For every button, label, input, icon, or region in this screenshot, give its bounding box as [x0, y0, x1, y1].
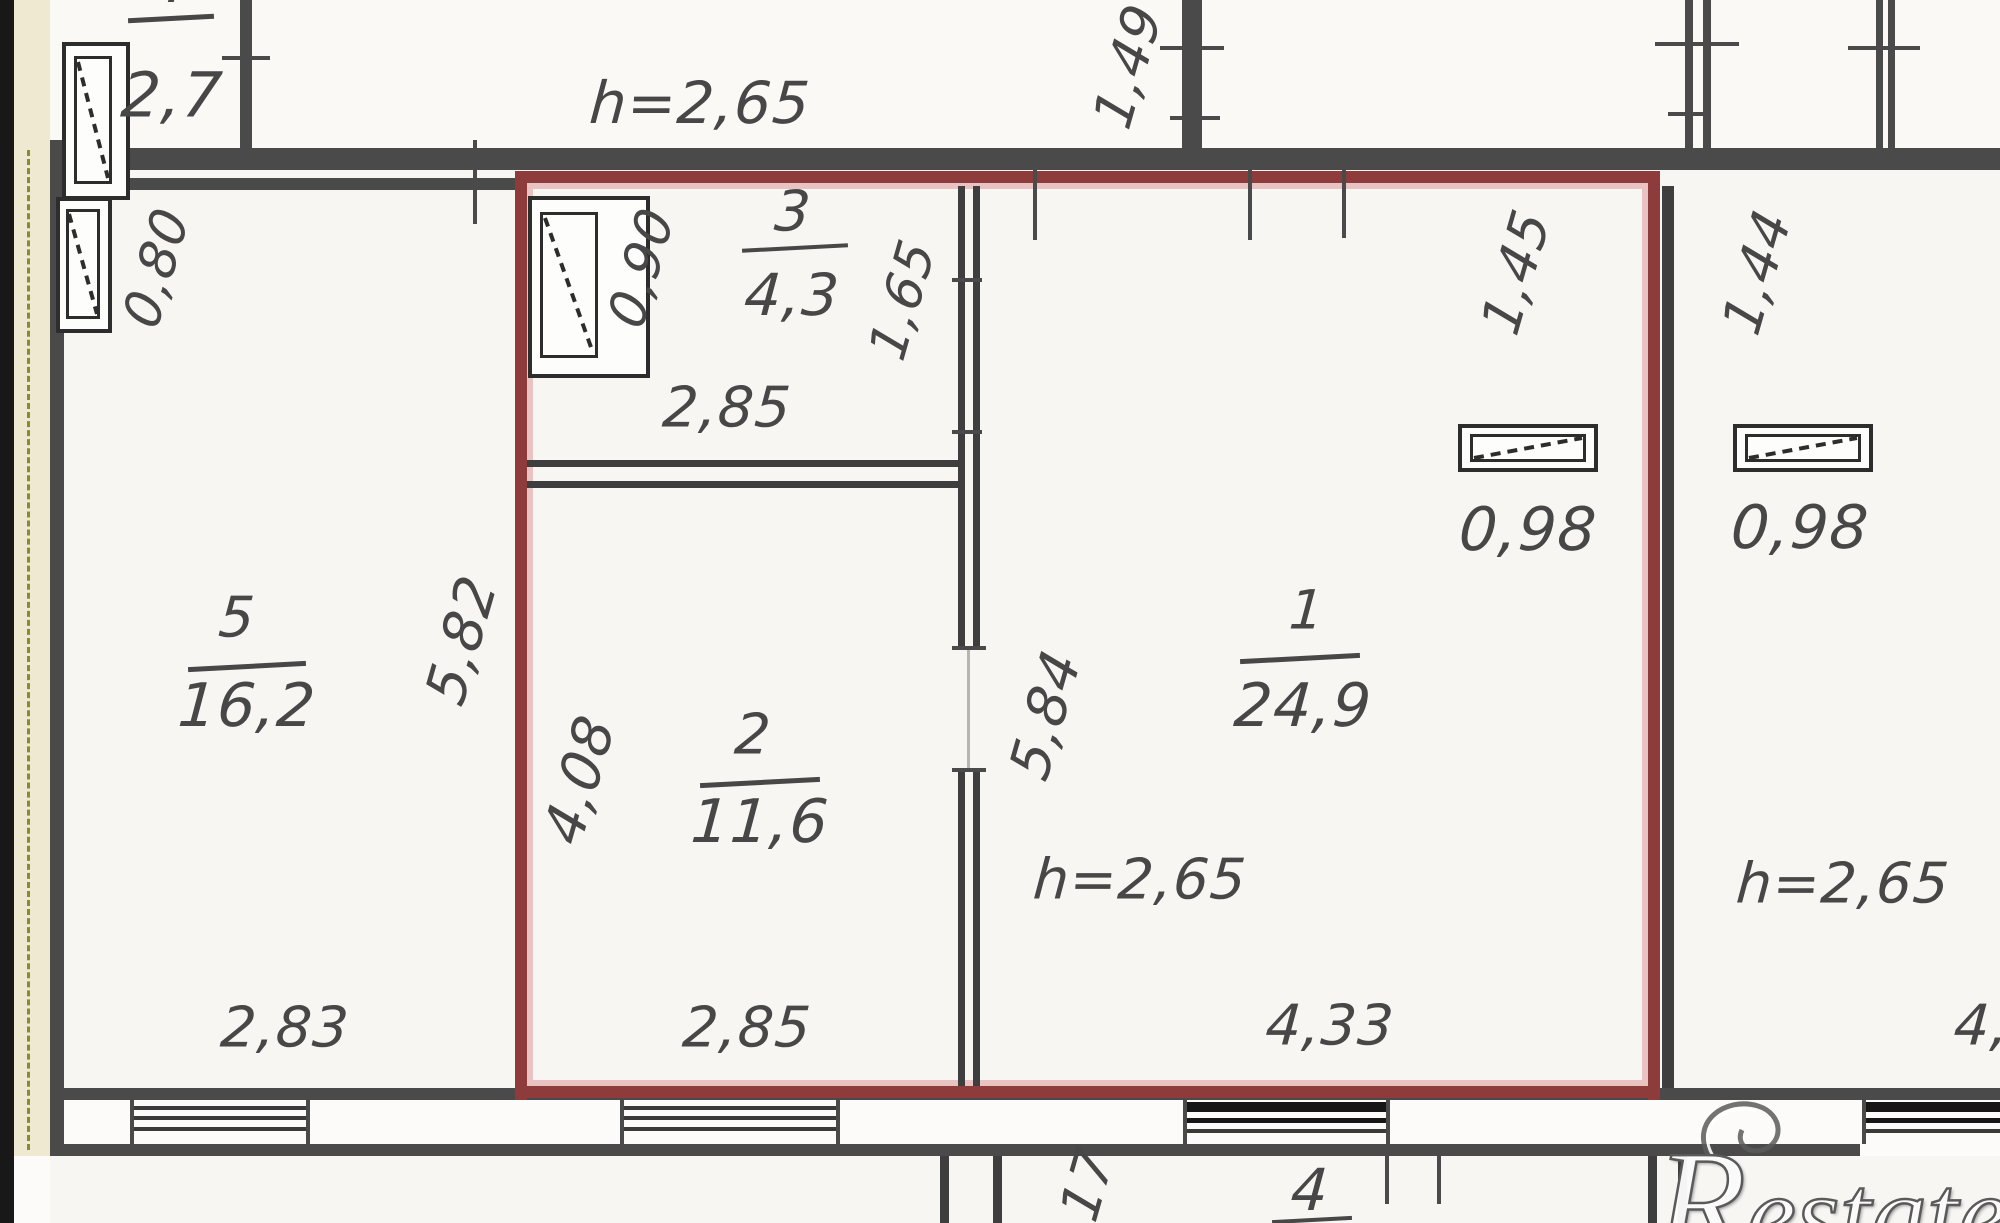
bottom-window-a2-line3: [624, 1127, 836, 1131]
red-left-wall: [515, 171, 527, 1100]
bottom-room-number: 4: [1289, 1156, 1332, 1223]
room1-number: 1: [1287, 579, 1327, 642]
left-black-strip: [0, 0, 14, 1223]
bottom-window-a1-line2: [134, 1116, 306, 1120]
room5-area: 16,2: [176, 671, 318, 741]
right-room-window-icon: [1733, 424, 1873, 472]
bottom-window-a1-line3: [134, 1127, 306, 1131]
red-right-wall: [1648, 171, 1660, 1100]
red-top-glow: [515, 183, 1660, 189]
bottom-window-a2-line1: [624, 1106, 836, 1110]
bottom-window-b1-line1: [1187, 1118, 1386, 1123]
wall-room2-room1-lower-l1: [958, 770, 965, 1088]
bottom-window-b1-cap-left: [1183, 1100, 1187, 1144]
bottom-window-a2-cap-right: [836, 1100, 840, 1144]
door-opening-tick-top: [952, 646, 986, 650]
bottom-wall-outer-line: [50, 1144, 1860, 1156]
bottom-window-a2-cap-left: [620, 1100, 624, 1144]
wall-room2-room1-upper-l2: [973, 186, 980, 648]
top-right-double-wall-b2: [1888, 0, 1895, 148]
room3-wall-tick-2: [952, 430, 982, 434]
red-wall-tick-2: [1248, 166, 1252, 240]
bottom-window-b1-cap-right: [1386, 1100, 1390, 1144]
top-vertical-wall: [1182, 0, 1202, 148]
top-wall-tick-left: [473, 140, 477, 224]
red-wall-tick-3: [1342, 150, 1346, 238]
balcony-dashed-line: [27, 150, 30, 1150]
room1-dim-bottom: 4,33: [1263, 994, 1396, 1059]
room1-area: 24,9: [1232, 671, 1374, 741]
right-room-left-wall: [1662, 186, 1674, 1088]
red-wall-tick-1: [1033, 166, 1037, 240]
top-right-double-wall-a2: [1703, 0, 1711, 148]
wall-room2-room1-lower-l2: [973, 770, 980, 1088]
bottom-window-a2-line2: [624, 1116, 836, 1120]
room5-number: 5: [216, 586, 257, 651]
wall-room3-room2-line2: [527, 481, 958, 488]
room3-area: 4,3: [742, 261, 842, 329]
door-opening-line: [967, 650, 970, 768]
top-right-wall-a-tick-1: [1655, 42, 1739, 46]
bottom-window-b2-bar: [1866, 1102, 2000, 1112]
room2-number: 2: [732, 703, 773, 768]
top-right-double-wall-b1: [1876, 0, 1883, 148]
red-bottom-wall: [515, 1086, 1660, 1098]
watermark-initial: R: [1656, 1121, 1746, 1223]
top-vertical-wall-tick-1: [1160, 46, 1224, 50]
bottom-room-wall-1b: [993, 1156, 1002, 1223]
bottom-room-tick-1: [1385, 1156, 1389, 1204]
bottom-window-a1-cap-left: [130, 1100, 134, 1144]
room1-ceiling-height: h=2,65: [1031, 848, 1249, 913]
top-wall: [50, 148, 2000, 170]
bottom-window-b1-line2: [1187, 1129, 1386, 1133]
room1-window-label: 0,98: [1457, 495, 1599, 565]
room4-right-wall: [240, 0, 252, 148]
room5-window-icon: [56, 197, 112, 333]
bottom-window-a1-line1: [134, 1106, 306, 1110]
bottom-window-a1-cap-right: [306, 1100, 310, 1144]
wall-room2-room1-upper-l1: [958, 186, 965, 648]
main-band-bg: [50, 170, 2000, 1088]
room3-wall-tick-1: [952, 278, 982, 282]
right-room-window-label: 0,98: [1729, 493, 1871, 563]
room3-dim-bottom: 2,85: [660, 376, 793, 441]
top-right-wall-b-tick: [1848, 46, 1920, 50]
room4-wall-tick: [222, 56, 270, 60]
left-cream-strip: [14, 0, 50, 1156]
room2-area: 11,6: [689, 787, 831, 857]
room5-dim-bottom: 2,83: [218, 996, 351, 1061]
bottom-room-wall-1a: [940, 1156, 949, 1223]
top-vertical-wall-tick-2: [1170, 116, 1220, 120]
room4-area: 2,7: [119, 59, 226, 132]
door-opening-tick-bottom: [952, 768, 986, 772]
wall-room3-room2-line1: [527, 460, 958, 467]
bottom-window-b1-bar: [1187, 1102, 1386, 1112]
right-room-dim-bottom: 4,3: [1952, 994, 2000, 1059]
floor-plan: 4 2,7 h=2,65 1,49 5 16,2 5,82 0,80 2,83 …: [0, 0, 2000, 1223]
hall-height-label: h=2,65: [587, 69, 812, 137]
right-room-ceiling-height: h=2,65: [1734, 852, 1952, 917]
bottom-room-tick-2: [1437, 1156, 1441, 1204]
room3-number: 3: [772, 180, 813, 245]
watermark-rest: estate: [1746, 1153, 2000, 1223]
room2-dim-bottom: 2,85: [680, 996, 813, 1061]
top-right-wall-a-tick-2: [1668, 112, 1708, 116]
top-right-double-wall-a1: [1685, 0, 1693, 148]
watermark-text: Restate: [1656, 1118, 2000, 1223]
room1-window-icon: [1458, 424, 1598, 472]
red-top-wall: [515, 171, 1660, 183]
